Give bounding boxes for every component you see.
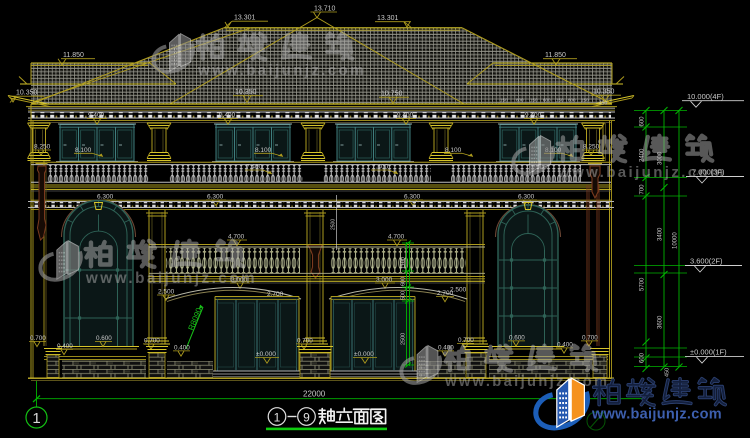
svg-text:www.baijunjz.com: www.baijunjz.com (591, 407, 722, 423)
svg-text:www.baijunjz.com: www.baijunjz.com (197, 62, 366, 79)
svg-text:9: 9 (303, 411, 310, 425)
svg-text:www.baijunjz.com: www.baijunjz.com (557, 164, 726, 181)
svg-text:1: 1 (274, 411, 281, 425)
svg-text:www.baijunjz.com: www.baijunjz.com (85, 270, 257, 287)
